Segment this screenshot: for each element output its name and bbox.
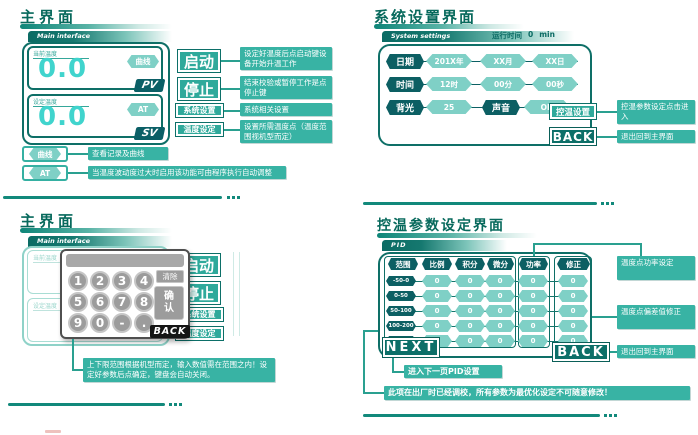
- date-year-value[interactable]: 201X年: [426, 54, 472, 68]
- pid-cell[interactable]: 0: [558, 275, 588, 287]
- stop-button[interactable]: 停止: [177, 77, 221, 101]
- keypad-key-2[interactable]: 2: [90, 271, 110, 291]
- date-label: 日期: [386, 54, 424, 69]
- connector-line: [68, 172, 88, 174]
- pid-cell[interactable]: 0: [422, 305, 452, 317]
- time-hour-value[interactable]: 12时: [426, 77, 472, 91]
- title-underline: [377, 233, 537, 238]
- annotation-note: 此项在出厂时已经调校，所有参数为最优化设定不可随意修改！: [384, 386, 690, 400]
- annotation-stop: 结束校验或暂停工作是点停止键: [240, 76, 332, 99]
- pid-cell[interactable]: 0: [485, 335, 515, 347]
- pid-cell[interactable]: 0: [455, 305, 485, 317]
- col-header-range: 范围: [388, 258, 418, 270]
- connector-line: [68, 153, 88, 155]
- temp-set-button[interactable]: 温度设定: [175, 122, 224, 137]
- keypad-key-5[interactable]: 5: [68, 292, 88, 312]
- connector-line: [363, 330, 365, 393]
- pid-cell[interactable]: 0: [558, 305, 588, 317]
- keypad-clear-button[interactable]: 清除: [156, 270, 184, 283]
- ghost-connector: [233, 252, 234, 336]
- keypad-confirm-button[interactable]: 确认: [154, 286, 184, 320]
- runtime-label: 运行时间: [492, 30, 522, 41]
- pid-cell[interactable]: 0: [485, 305, 515, 317]
- connector-line: [221, 88, 240, 90]
- divider-dots: [601, 202, 604, 205]
- date-day-value[interactable]: XX日: [532, 54, 578, 68]
- annotation-curve: 查看记录及曲线: [88, 147, 168, 160]
- page-edge-artifact: [45, 430, 61, 433]
- annotation-keypad: 上下限范围根据机型而定，输入数值需在范围之内！设定好参数后点确定，键盘会自动关闭…: [83, 358, 275, 382]
- time-label: 时间: [386, 77, 424, 92]
- divider-dots: [604, 414, 607, 417]
- pid-range-label: 50-100: [386, 306, 416, 316]
- curve-button[interactable]: 曲线: [127, 55, 159, 68]
- section-divider: [363, 414, 600, 417]
- pid-cell[interactable]: 0: [518, 305, 548, 317]
- connector-line: [592, 316, 617, 318]
- col-header-derivative: 微分: [487, 258, 514, 270]
- runtime-unit: min: [539, 30, 555, 41]
- connector-line: [72, 339, 74, 370]
- title-underline: [374, 24, 524, 29]
- backlight-value[interactable]: 25: [426, 100, 472, 114]
- pid-cell[interactable]: 0: [518, 290, 548, 302]
- connector-line: [597, 136, 617, 138]
- divider-dots: [169, 403, 172, 406]
- keypad-key-0[interactable]: 0: [90, 313, 110, 333]
- pid-cell[interactable]: 0: [558, 320, 588, 332]
- annotation-back: 退出回到主界面: [617, 130, 695, 143]
- back-button[interactable]: BACK: [552, 342, 610, 362]
- at-legend-lens: AT: [29, 167, 61, 179]
- annotation-start: 设定好温度后点启动键设备开始升温工作: [240, 47, 332, 70]
- back-button[interactable]: BACK: [549, 127, 597, 146]
- screen-tag: Main interface: [28, 31, 178, 42]
- title-underline: [20, 24, 172, 29]
- pid-range-label: 100-200: [386, 321, 416, 331]
- date-month-value[interactable]: XX月: [480, 54, 526, 68]
- screen-tag: PID: [382, 240, 512, 251]
- col-header-proportional: 比例: [422, 258, 452, 270]
- col-header-power: 功率: [519, 258, 548, 270]
- sv-value: 0.0: [38, 104, 87, 130]
- pid-cell[interactable]: 0: [422, 275, 452, 287]
- runtime-value: 0: [528, 30, 533, 41]
- sv-badge: SV: [134, 127, 166, 140]
- annotation-at: 当温度波动度过大时启用该功能可由程序执行自动调整: [88, 166, 286, 179]
- pid-cell[interactable]: 0: [455, 320, 485, 332]
- connector-line: [221, 60, 240, 62]
- connector-line: [224, 129, 240, 131]
- connector-line: [72, 369, 83, 371]
- pid-cell[interactable]: 0: [518, 320, 548, 332]
- divider-dots: [227, 196, 230, 199]
- connector-line: [610, 351, 617, 353]
- section-divider: [8, 403, 165, 406]
- page-title: 控温参数设定界面: [377, 215, 505, 235]
- curve-legend-lens: 曲线: [29, 148, 61, 160]
- keypad-key-8[interactable]: 8: [134, 292, 154, 312]
- annotation-back: 退出回到主界面: [617, 345, 695, 358]
- temp-ctrl-button[interactable]: 控温设置: [549, 103, 597, 120]
- pid-cell[interactable]: 0: [455, 275, 485, 287]
- at-button[interactable]: AT: [127, 103, 159, 116]
- pid-cell[interactable]: 0: [422, 290, 452, 302]
- annotation-temp-ctrl: 控温参数设定点击进入: [617, 100, 695, 124]
- annotation-correction: 温度点偏差值修正: [617, 305, 695, 329]
- manual-page: 主界面 Main interface 当前温度 0.0 曲线 PV 设定温度 0…: [0, 0, 698, 435]
- keypad-input-field[interactable]: [66, 254, 184, 267]
- start-button[interactable]: 启动: [177, 49, 221, 73]
- pid-range-label: -50-0: [386, 276, 416, 286]
- connector-line: [392, 371, 404, 373]
- section-divider: [363, 202, 597, 205]
- pid-cell[interactable]: 0: [455, 335, 485, 347]
- pid-cell[interactable]: 0: [558, 290, 588, 302]
- pid-range-label: 0-50: [386, 291, 416, 301]
- connector-line: [224, 110, 240, 112]
- keypad-key-6[interactable]: 6: [90, 292, 110, 312]
- keypad-key--[interactable]: -: [112, 313, 132, 333]
- keypad-key-7[interactable]: 7: [112, 292, 132, 312]
- annotation-system: 系统相关设置: [240, 103, 332, 116]
- section-divider: [3, 196, 222, 199]
- annotation-temp-set: 设置所需温度点（温度范围视机型而定）: [240, 120, 332, 143]
- pid-cell[interactable]: 0: [485, 290, 515, 302]
- backlight-label: 背光: [386, 100, 424, 115]
- connector-line: [597, 111, 617, 113]
- keypad-key-3[interactable]: 3: [112, 271, 132, 291]
- connector-line: [640, 243, 642, 256]
- pid-cell[interactable]: 0: [485, 275, 515, 287]
- pv-badge: PV: [134, 79, 166, 92]
- connector-line: [392, 358, 394, 372]
- annotation-next: 进入下一页PID设置: [404, 365, 502, 378]
- ghost-connector: [239, 252, 240, 336]
- runtime-readout: 运行时间 0 min: [492, 30, 555, 41]
- keypad-key-9[interactable]: 9: [68, 313, 88, 333]
- sound-label: 声音: [482, 100, 520, 115]
- next-button[interactable]: NEXT: [382, 337, 440, 358]
- pid-cell[interactable]: 0: [422, 320, 452, 332]
- time-minute-value[interactable]: 00分: [480, 77, 526, 91]
- time-second-value[interactable]: 00秒: [532, 77, 578, 91]
- keypad-key-4[interactable]: 4: [134, 271, 154, 291]
- title-underline: [20, 228, 172, 233]
- pid-cell[interactable]: 0: [485, 320, 515, 332]
- pid-cell[interactable]: 0: [455, 290, 485, 302]
- connector-line: [363, 330, 378, 332]
- system-settings-button[interactable]: 系统设置: [175, 103, 224, 118]
- pid-cell[interactable]: 0: [518, 335, 548, 347]
- keypad-key-1[interactable]: 1: [68, 271, 88, 291]
- pv-value: 0.0: [38, 56, 87, 82]
- connector-line: [533, 243, 640, 245]
- pid-cell[interactable]: 0: [518, 275, 548, 287]
- col-header-correction: 修正: [557, 258, 590, 270]
- connector-line: [363, 392, 384, 394]
- connector-line: [533, 243, 535, 256]
- col-header-integral: 积分: [455, 258, 485, 270]
- keypad-back-button[interactable]: BACK: [150, 325, 190, 338]
- annotation-power: 温度点功率设定: [617, 256, 695, 280]
